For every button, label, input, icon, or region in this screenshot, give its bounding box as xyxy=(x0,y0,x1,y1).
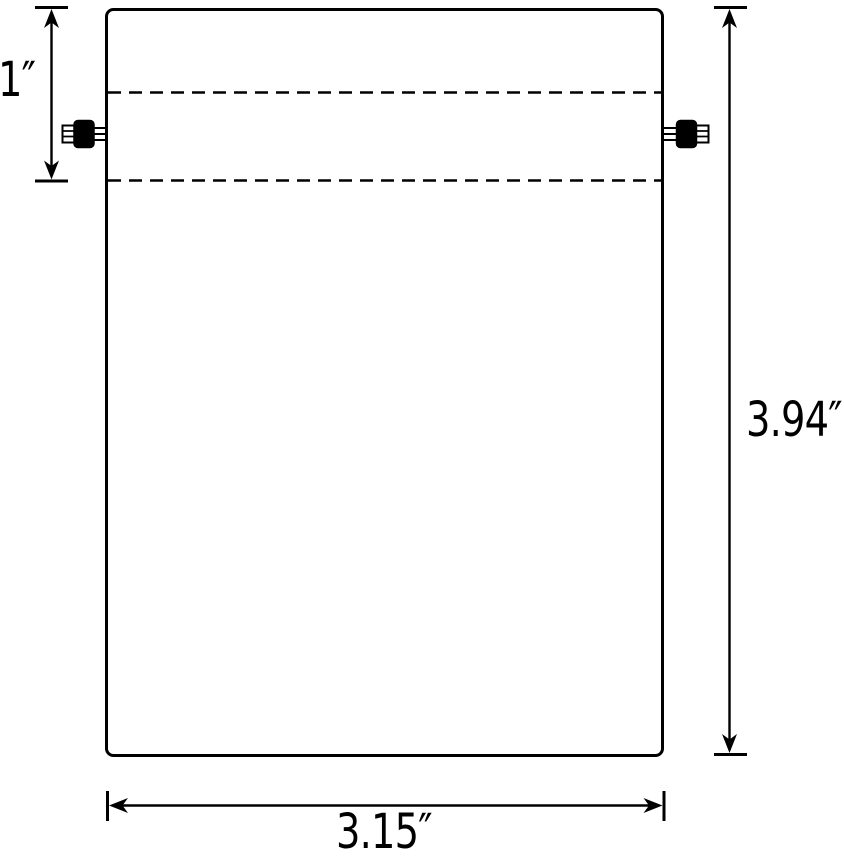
right-cord-stopper xyxy=(661,121,709,148)
bag-outline xyxy=(107,10,663,756)
hem-height-value: 1″ xyxy=(0,54,35,107)
left-stopper-body xyxy=(74,121,94,148)
bag-height-dimension xyxy=(714,8,747,755)
bag-height-label: 3.94″ xyxy=(746,394,844,447)
hem-height-label: 1″ xyxy=(0,54,44,107)
bag-width-value: 3.15″ xyxy=(336,806,432,856)
dimension-diagram: 1″ 3.94″ 3.15″ xyxy=(0,0,844,856)
right-stopper-body xyxy=(677,121,697,148)
diagram-line-art xyxy=(0,0,844,856)
left-cord-stopper xyxy=(63,121,108,148)
bag-height-value: 3.94″ xyxy=(746,394,842,447)
bag-width-label: 3.15″ xyxy=(105,806,663,856)
